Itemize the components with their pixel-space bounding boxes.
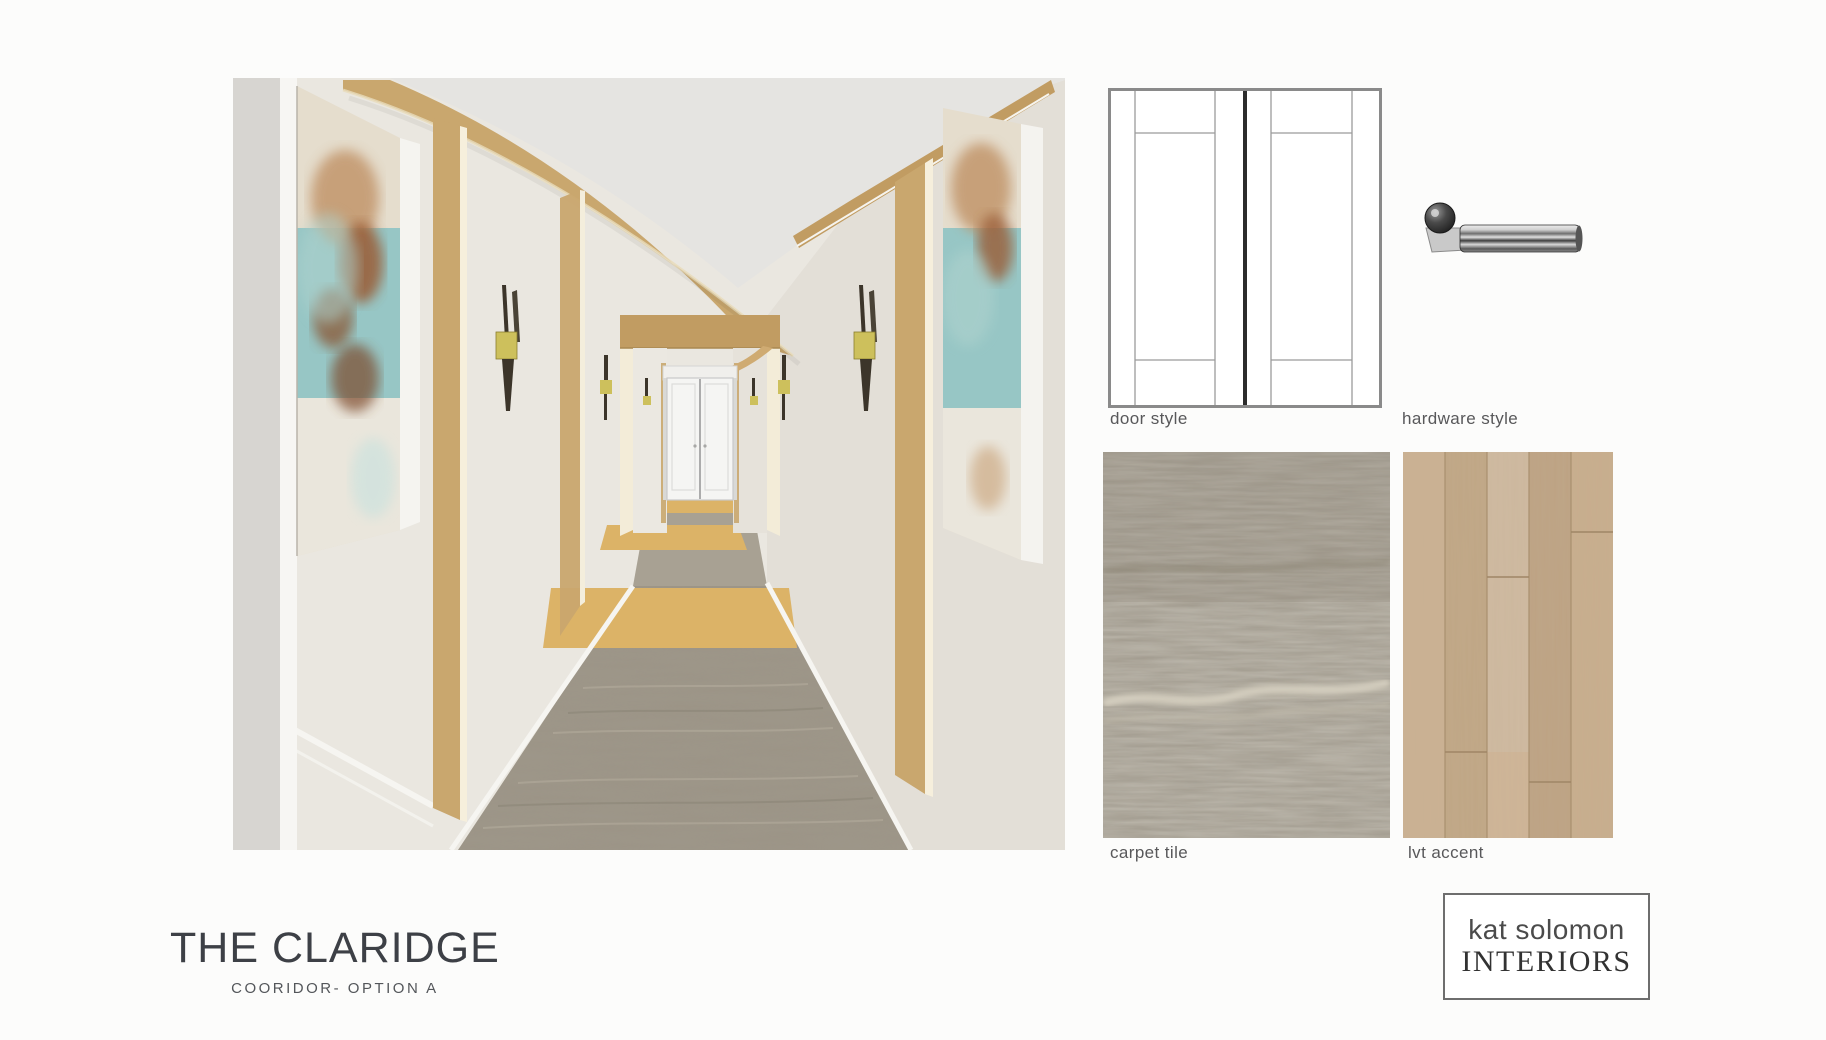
carpet-tile-sample xyxy=(1103,452,1390,838)
lever-rose xyxy=(1425,203,1455,233)
left-pilaster-lit-edge xyxy=(460,126,467,822)
logo-word-interiors: INTERIORS xyxy=(1461,945,1631,978)
lvt-accent-sample xyxy=(1403,452,1613,838)
left-deep-pilaster xyxy=(560,190,580,636)
designer-logo: kat solomon INTERIORS xyxy=(1443,893,1650,1000)
lever-bar xyxy=(1460,225,1580,252)
right-door-pilaster xyxy=(895,163,925,794)
carpet-tile-swatch xyxy=(1103,452,1390,838)
hardware-lever-icon xyxy=(1418,192,1588,267)
corridor-rendering xyxy=(233,78,1065,850)
hardware-lever-drawing xyxy=(1418,192,1588,267)
lvt-grain xyxy=(1403,452,1613,838)
title-block: THE CLARIDGE COORIDOR- OPTION A xyxy=(170,924,500,997)
presentation-board: door style xyxy=(0,0,1826,1040)
lever-rose-highlight xyxy=(1431,209,1439,217)
right-artwork-canvas-edge xyxy=(1021,124,1043,564)
carpet-tile-label: carpet tile xyxy=(1110,843,1188,863)
near-wall-white-strip xyxy=(280,78,297,850)
portal-wood-header xyxy=(620,315,780,348)
lever-bar-end xyxy=(1576,226,1583,252)
end-double-door xyxy=(663,366,737,500)
corridor-scene xyxy=(233,78,1065,850)
near-wall-gray-strip xyxy=(233,78,280,850)
left-sconce-gold-band xyxy=(496,332,517,359)
left-door-pilaster xyxy=(433,118,460,820)
right-sconce-gold-band xyxy=(854,332,875,359)
logo-name: kat solomon xyxy=(1468,915,1624,944)
project-title: THE CLARIDGE xyxy=(170,924,500,973)
right-artwork xyxy=(938,108,1043,568)
left-artwork xyxy=(293,86,420,568)
hardware-style-label: hardware style xyxy=(1402,409,1518,429)
lvt-accent-label: lvt accent xyxy=(1408,843,1484,863)
carpet-dark-zone xyxy=(1103,452,1390,602)
left-deep-pilaster-edge xyxy=(580,190,585,606)
lvt-accent-swatch xyxy=(1403,452,1613,838)
door-style-label: door style xyxy=(1110,409,1188,429)
door-style-drawing xyxy=(1108,88,1382,408)
right-pilaster-lit-edge xyxy=(925,158,933,797)
left-artwork-canvas-edge xyxy=(400,138,420,530)
door-style-figure xyxy=(1108,88,1382,408)
project-subtitle: COORIDOR- OPTION A xyxy=(170,980,500,997)
